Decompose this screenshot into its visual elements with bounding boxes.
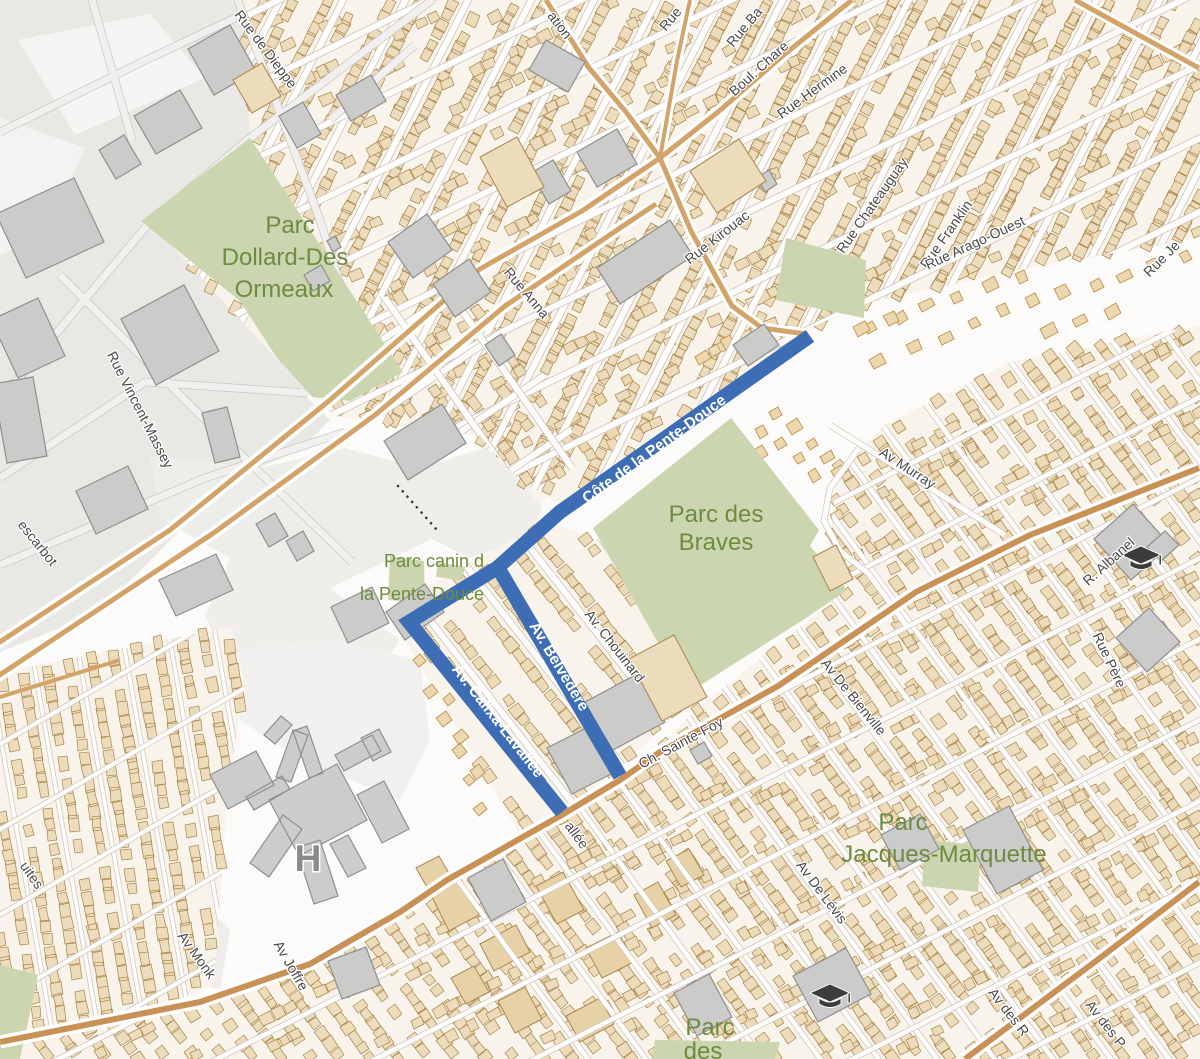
svg-text:Parc: Parc (265, 212, 314, 239)
svg-text:la Pente-Douce: la Pente-Douce (360, 584, 484, 604)
svg-text:Parc: Parc (685, 1014, 734, 1041)
svg-text:des: des (684, 1038, 723, 1059)
svg-text:H: H (295, 838, 322, 879)
svg-text:Braves: Braves (679, 529, 754, 556)
svg-text:Parc: Parc (878, 809, 927, 836)
svg-text:Dollard-Des: Dollard-Des (222, 244, 349, 271)
svg-text:Ormeaux: Ormeaux (235, 276, 334, 303)
svg-text:Parc des: Parc des (669, 501, 764, 528)
svg-text:Parc canin d: Parc canin d (384, 551, 484, 571)
svg-text:Jacques-Marquette: Jacques-Marquette (841, 841, 1046, 868)
